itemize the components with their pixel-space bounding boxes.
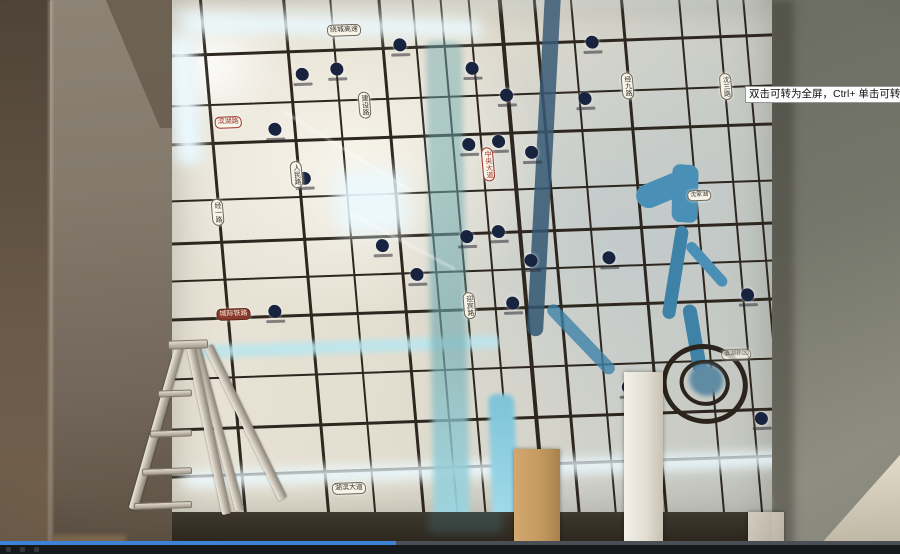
video-control-bar[interactable] [0,545,900,554]
ladder-step [142,467,192,476]
left-wall-panel-edge [0,0,50,554]
poi-marker [602,251,616,264]
poi-marker [393,38,407,51]
ladder-top-platform [168,339,208,349]
poi-marker [491,225,505,238]
road-label: 建设路 [357,91,371,118]
road-label: 经九路 [620,72,634,99]
poi-marker [492,135,506,148]
foreground-pillar [624,372,663,554]
control-glyph [20,547,25,552]
poi-marker [754,412,768,425]
poi-marker [460,230,474,243]
ladder-front-left-rail [129,343,185,511]
road-label: 城际铁路 [216,308,251,321]
foreground-box [514,449,560,554]
ladder-step [134,501,192,510]
ladder-step [150,429,192,437]
fullscreen-hint-tooltip: 双击可转为全屏，Ctrl+ 单击可转为 [745,86,900,103]
road-label: 经一路 [210,199,224,226]
control-glyph [6,547,11,552]
road-label: 滨湖路 [214,116,242,129]
step-ladder [118,336,298,516]
poi-marker [499,88,513,101]
river-main [527,0,561,337]
road-label: 人民路 [289,161,303,188]
road-label: 迎宾路 [462,292,476,319]
poi-marker [410,268,424,281]
control-glyph [34,547,39,552]
river-teal [426,41,471,512]
road-label: 沈三路 [719,73,733,100]
ladder-step [158,389,192,397]
road-label: 滨湖新区 [721,348,752,360]
poi-marker [330,62,344,75]
road-label: 沈家湖 [687,190,712,202]
map-road [172,83,772,109]
poi-marker [578,92,592,105]
road-label: 绕城高速 [326,24,361,37]
video-player-frame[interactable]: 绕城高速滨湖路城际铁路湖滨大道沈家湖经一路人民路建设路迎宾路中央大道经九路沈三路… [0,0,900,554]
poi-marker [585,35,599,48]
poi-marker [465,62,479,75]
wall-edge-highlight [48,0,53,554]
poi-marker [295,68,309,81]
road-label: 湖滨大道 [331,482,366,495]
poi-marker [268,123,282,136]
poi-marker [462,138,476,151]
poi-marker [375,239,389,252]
